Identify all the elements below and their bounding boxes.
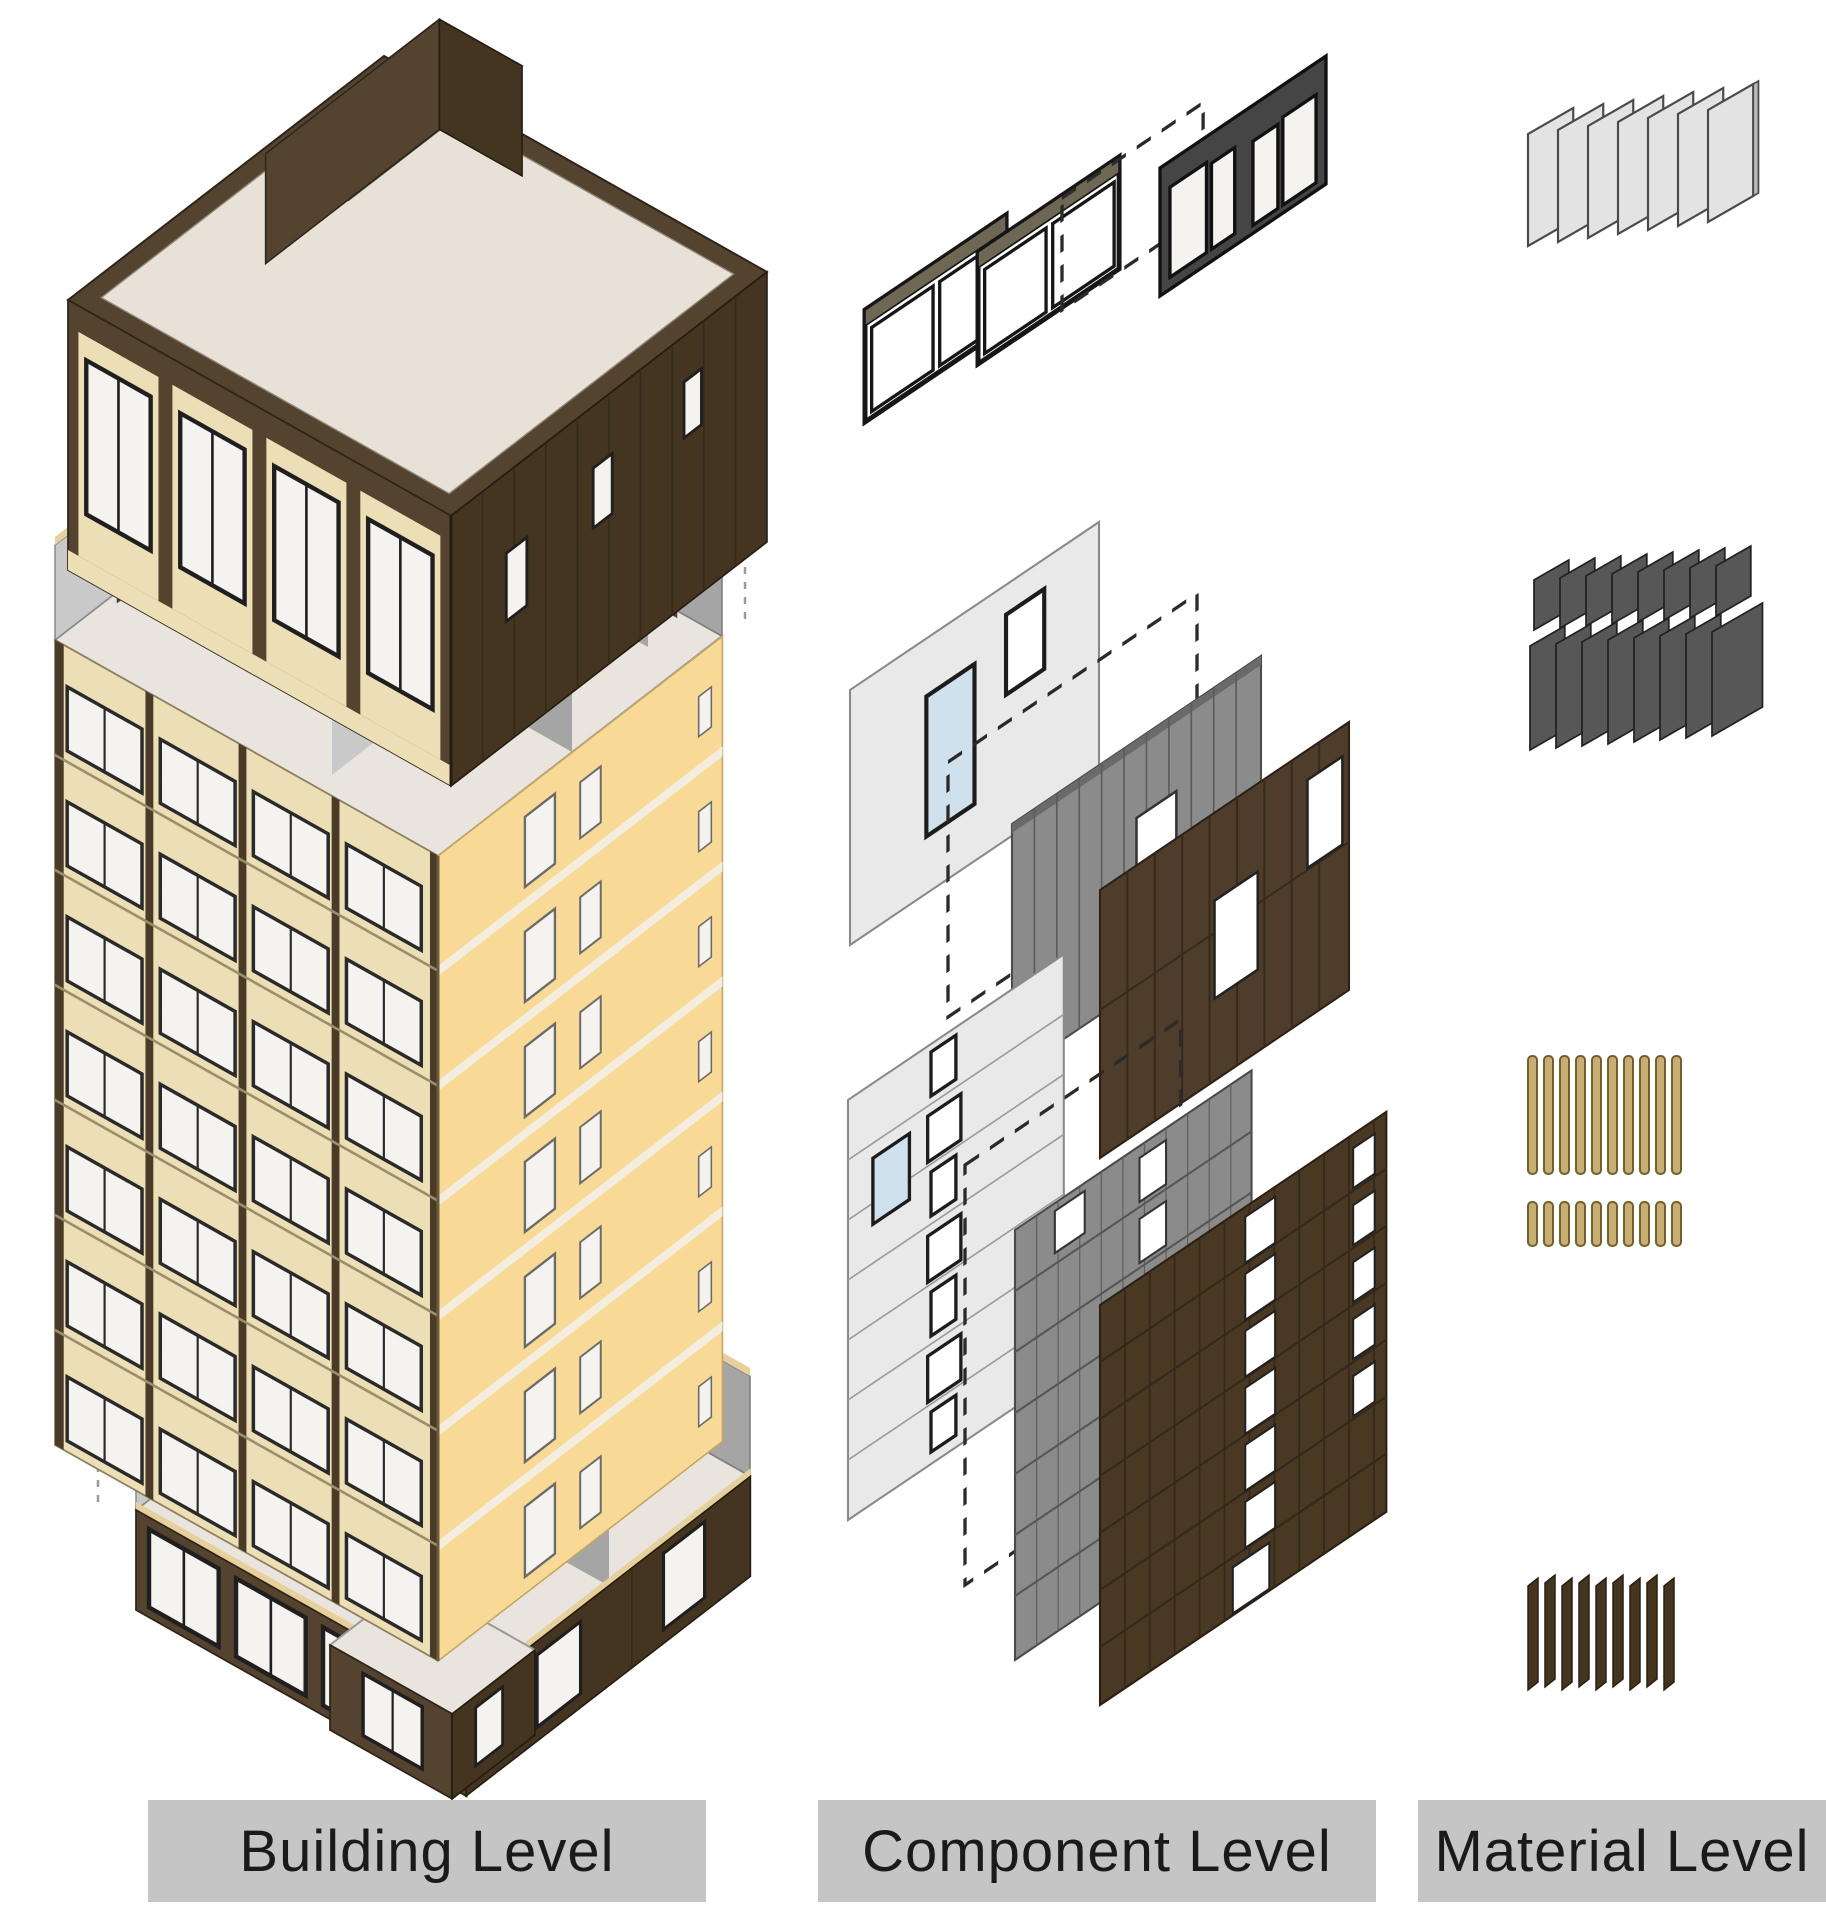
figure-canvas: Building Level Component Level Material … [0,0,1826,1931]
timber-batten-row-tall [1528,1056,1681,1174]
material-level-label: Material Level [1418,1800,1826,1902]
roof-facade-bay [360,491,440,760]
building-level-label: Building Level [148,1800,706,1902]
exploded-axonometric-figure [0,0,1826,1931]
window-assembly-dark [1160,56,1326,296]
building-level-column [55,19,767,1799]
component-level-column [848,56,1386,1705]
component-level-label: Component Level [818,1800,1376,1902]
window-frame-b [978,157,1119,364]
dark-board-stack-tall [1530,603,1762,750]
roof-facade-bay [78,332,158,601]
light-board-stack [1528,81,1758,246]
timber-batten-row-short [1528,1202,1681,1246]
cladding-plank-stack [1528,1575,1674,1690]
roof-facade-bay [172,385,252,654]
roof-facade-bay [266,438,346,707]
window-frame-set [865,56,1326,422]
material-level-column [1528,81,1762,1690]
